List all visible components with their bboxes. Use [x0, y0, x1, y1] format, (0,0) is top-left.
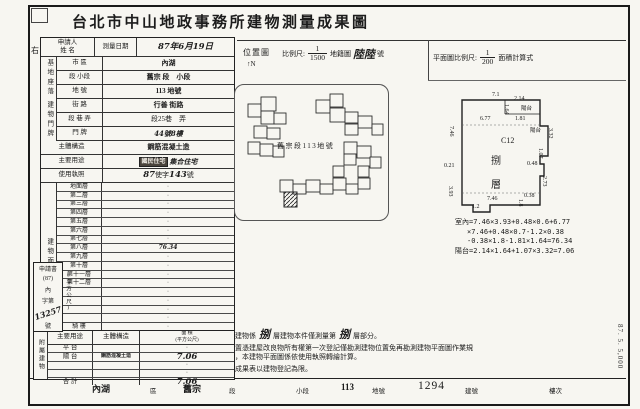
section-value: 舊宗 段 小段 [103, 71, 234, 84]
location-scale: 比例尺: 1 1500 地籍圖 陸陸 號 [282, 45, 384, 62]
floor-value: · [102, 192, 234, 200]
area-row: · [57, 288, 234, 297]
subject-building-hatch [284, 192, 297, 207]
note-item: 三、本成果表以建物登記為限。 [211, 365, 473, 374]
floor-label: 第三層 [57, 201, 102, 209]
lot-label: 地 號 [57, 85, 103, 98]
street-value: 行善 街路 [103, 99, 234, 112]
applicant-name-label: 申請人 姓 名 [41, 38, 95, 56]
area-row: 地面層· [57, 183, 234, 192]
floor-value: · [102, 271, 234, 279]
annex-structure [93, 370, 140, 377]
area-row: 第十層· [57, 262, 234, 271]
floor-label: 地面層 [57, 183, 102, 191]
plan-scale-numerator: 1 [486, 49, 490, 57]
north-indicator: ↑N [247, 60, 256, 68]
structure-label: 主體構造 [41, 141, 103, 154]
site-group-label-text: 基地座落 [45, 59, 52, 97]
usage-row: 主要用途 國民住宅 集合住宅 [41, 155, 234, 169]
annex-use [48, 370, 93, 377]
area-row: 第七層· [57, 236, 234, 245]
area-row: 第八層76.34 [57, 244, 234, 253]
note-item: 二、依置憑建屋改良物所有權第一次登記僅勘測建物位置免再勘測建物平面圖作業規定，本… [211, 344, 473, 362]
application-number: 13257 [33, 304, 63, 322]
annex-row: 平 台· [48, 345, 234, 353]
annex-use: 陽 台 [48, 353, 93, 360]
annex-structure [93, 362, 140, 369]
area-row: 第二層· [57, 192, 234, 201]
calc-line-continue2: -0.38×1.8-1.81×1.64=76.34 [455, 237, 574, 247]
usage-label: 主要用途 [41, 155, 103, 168]
floor-value: · [102, 183, 234, 191]
district-value: 內湖 [103, 57, 234, 70]
scanned-survey-document: 右 台北市中山地政事務所建物測量成果圖 申請人 姓 名 測量日期 87年6月19… [0, 0, 640, 409]
section-label: 段 小段 [57, 71, 103, 84]
annex-use: 合 計 [48, 378, 93, 385]
area-row: 第十二層· [57, 279, 234, 288]
calc-line-interior: 室內=7.46×3.93+0.48×0.6+6.77 [455, 218, 574, 228]
survey-date-label: 測量日期 [95, 38, 137, 56]
floor-value: · [102, 288, 234, 296]
annex-group-label-text: 附屬建物 [38, 339, 44, 371]
application-number-box: 申請書 (87) 內 字第 13257 號 [33, 262, 63, 332]
floor-label [57, 314, 102, 322]
survey-date-row: 申請人 姓 名 測量日期 87年6月19日 [41, 38, 234, 57]
door-group-label: 建物門牌 [41, 99, 57, 141]
applicant-label-line2: 姓 名 [60, 47, 75, 55]
north-letter: N [251, 60, 256, 68]
area-row: · [57, 297, 234, 306]
note-item: 一、本建物係捌層建物本件僅測量第捌層部分。 [211, 331, 473, 341]
note-text-part: 捌 [336, 328, 353, 341]
annex-structure [93, 345, 140, 352]
corner-box [31, 8, 48, 23]
license-number: 143 [169, 171, 187, 180]
application-year: (87) [43, 276, 53, 282]
margin-mark: 右 [31, 45, 39, 56]
floor-value: · [102, 262, 234, 270]
license-row: 使用執照 87 使字 143 號 [41, 169, 234, 183]
note-text-part: 依置憑建屋改良物所有權第一次登記僅勘測建物位置免再勘測建物平面圖作業規定，本建物… [228, 344, 473, 361]
plan-scale-fraction: 1 200 [480, 49, 495, 66]
door-row-number: 門 牌 44號8樓 [57, 127, 234, 141]
area-row: 第十一層· [57, 271, 234, 280]
site-location-group: 基地座落 市 區 內湖 段 小段 舊宗 段 小段 地 號 113 地號 [41, 57, 234, 99]
application-office: 內 [45, 285, 51, 294]
area-row: 第五層· [57, 218, 234, 227]
note-text-part: 本成果表以建物登記為限。 [228, 365, 312, 373]
plan-scale-denominator: 200 [480, 57, 495, 66]
area-row: 第六層· [57, 227, 234, 236]
floor-label: 第四層 [57, 209, 102, 217]
annex-area: · [140, 345, 234, 352]
plan-scale-prefix: 平面圖比例尺: [433, 53, 477, 63]
floor-label: 第九層 [57, 253, 102, 261]
door-number-value: 44號8樓 [103, 127, 234, 140]
annex-rows: 平 台·陽 台鋼筋混凝土造7.06··合 計7.06 [48, 345, 234, 386]
area-row: · [57, 306, 234, 315]
annex-area: 7.06 [140, 353, 234, 360]
map-sheet-unit: 號 [377, 49, 384, 59]
door-plate-group: 建物門牌 街 路 行善 街路 段 巷 弄 段25巷 弄 門 牌 44號8樓 [41, 99, 234, 141]
annex-row: · [48, 362, 234, 370]
scale-divider [428, 40, 429, 80]
floor-label: 第七層 [57, 236, 102, 244]
annex-use [48, 362, 93, 369]
floor-label: 第六層 [57, 227, 102, 235]
floor-label: 第五層 [57, 218, 102, 226]
page-title: 台北市中山地政事務所建物測量成果圖 [72, 11, 370, 32]
site-row-district: 市 區 內湖 [57, 57, 234, 71]
calc-line-balcony: 陽台=2.14×1.64+1.07×3.32=7.06 [455, 247, 574, 257]
site-group-label: 基地座落 [41, 57, 57, 99]
note-text: 依置憑建屋改良物所有權第一次登記僅勘測建物位置免再勘測建物平面圖作業規定，本建物… [228, 344, 473, 362]
plan-header-divider [428, 80, 626, 81]
survey-date-value: 87年6月19日 [137, 38, 234, 56]
note-text: 本建物係捌層建物本件僅測量第捌層部分。 [228, 331, 473, 341]
notes-list: 一、本建物係捌層建物本件僅測量第捌層部分。二、依置憑建屋改良物所有權第一次登記僅… [211, 331, 473, 377]
floor-value: · [102, 201, 234, 209]
cadastral-map-word: 地籍圖 [330, 49, 351, 59]
annex-use: 平 台 [48, 345, 93, 352]
area-row: 第三層· [57, 201, 234, 210]
annex-area: 7.06 [140, 378, 234, 385]
door-row-street: 街 路 行善 街路 [57, 99, 234, 113]
application-suffix: 號 [45, 321, 51, 330]
district-label: 市 區 [57, 57, 103, 70]
annex-group-label: 附屬建物 [34, 331, 48, 379]
annex-header-row: 主要用途 主體構造 面 積 (平方公尺) [48, 331, 234, 345]
usage-value-text: 集合住宅 [170, 158, 198, 165]
license-label: 使用執照 [41, 169, 103, 182]
floor-value: · [102, 236, 234, 244]
floor-label: 第二層 [57, 192, 102, 200]
annex-area: · [140, 362, 234, 369]
area-calculation: 室內=7.46×3.93+0.48×0.6+6.77 ×7.46+0.48×0.… [455, 218, 574, 256]
lane-label: 段 巷 弄 [57, 113, 103, 126]
floor-value: · [102, 253, 234, 261]
area-row: 第四層· [57, 209, 234, 218]
map-sheet-number: 陸陸 [353, 46, 375, 62]
floor-label: 第十層 [57, 262, 102, 270]
location-scale-prefix: 比例尺: [282, 49, 305, 59]
note-text-part: 層建物本件僅測量第 [273, 332, 336, 340]
application-word: 申請書 [39, 264, 57, 273]
note-text-part: 捌 [256, 328, 273, 341]
area-floor-rows: 地面層·第二層·第三層·第四層·第五層·第六層·第七層·第八層76.34第九層·… [57, 183, 234, 331]
plan-scale: 平面圖比例尺: 1 200 面積計算式 [433, 49, 533, 66]
applicant-label-line1: 申請人 [58, 39, 78, 47]
area-row: · [57, 314, 234, 323]
annex-col-area: 面 積 (平方公尺) [140, 331, 234, 344]
location-scale-fraction: 1 1500 [308, 45, 327, 62]
floor-value: · [102, 209, 234, 217]
license-value: 87 使字 143 號 [103, 169, 234, 182]
annex-row: 陽 台鋼筋混凝土造7.06 [48, 353, 234, 361]
structure-row: 主體構造 鋼筋混凝土造 [41, 141, 234, 155]
annex-row: 合 計7.06 [48, 378, 234, 385]
annex-col-structure: 主體構造 [93, 331, 140, 344]
floor-plan-drawing [440, 86, 555, 218]
structure-value: 鋼筋混凝土造 [103, 141, 234, 154]
note-text-part: 層部分。 [353, 332, 381, 340]
lane-value: 段25巷 弄 [103, 113, 234, 126]
area-row: 第九層· [57, 253, 234, 262]
interior-dimension-lines [462, 125, 540, 193]
scale-denominator: 1500 [308, 53, 327, 62]
scale-numerator: 1 [316, 45, 320, 53]
floor-value: · [102, 297, 234, 305]
application-prefix: 字第 [42, 296, 54, 305]
public-housing-stamp: 國民住宅 [139, 157, 167, 167]
annex-col-area-line2: (平方公尺) [175, 338, 198, 345]
floor-label: 第八層 [57, 244, 102, 252]
license-suffix: 號 [187, 172, 194, 179]
door-row-lane: 段 巷 弄 段25巷 弄 [57, 113, 234, 127]
floor-value: · [102, 279, 234, 287]
note-text: 本成果表以建物登記為限。 [228, 365, 473, 374]
door-group-label-text: 建物門牌 [45, 101, 52, 139]
street-label: 街 路 [57, 99, 103, 112]
floor-value: · [102, 227, 234, 235]
parcel-label: 舊宗段113地號 [277, 141, 334, 151]
annex-structure: 鋼筋混凝土造 [93, 353, 140, 360]
header-divider [237, 40, 626, 41]
print-batch-code: 87. 5. 5,000 [616, 324, 624, 369]
lot-value: 113 地號 [103, 85, 234, 98]
door-number-label: 門 牌 [57, 127, 103, 140]
site-plan-drawing [234, 84, 387, 219]
area-unit-label: (平方公尺) [64, 272, 72, 312]
floor-value: · [102, 306, 234, 314]
calc-line-continue1: ×7.46+0.48×0.7-1.2×0.38 [455, 228, 574, 238]
annex-building-table: 附屬建物 主要用途 主體構造 面 積 (平方公尺) 平 台·陽 台鋼筋混凝土造7… [33, 330, 235, 380]
site-row-section: 段 小段 舊宗 段 小段 [57, 71, 234, 85]
location-map-title: 位置圖 [243, 47, 270, 58]
license-word: 使字 [155, 172, 169, 179]
floor-value: · [102, 218, 234, 226]
balcony-divider [505, 100, 540, 114]
usage-value: 國民住宅 集合住宅 [103, 155, 234, 168]
annex-area: · [140, 370, 234, 377]
annex-row: · [48, 370, 234, 378]
site-row-lot: 地 號 113 地號 [57, 85, 234, 99]
floor-plan-outline [462, 100, 548, 212]
floor-value: 76.34 [102, 244, 234, 252]
annex-structure [93, 378, 140, 385]
license-year: 87 [143, 171, 155, 180]
annex-col-use: 主要用途 [48, 331, 93, 344]
plan-scale-suffix: 面積計算式 [498, 53, 533, 63]
floor-value: · [102, 314, 234, 322]
